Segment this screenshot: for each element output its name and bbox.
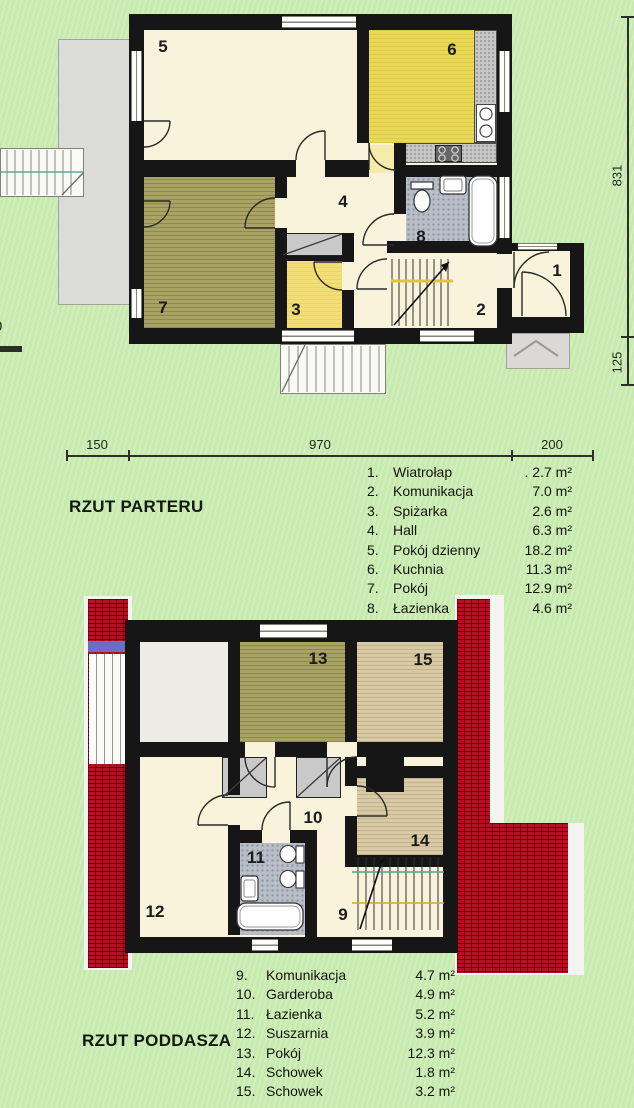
wall [129, 160, 296, 177]
attic-room-nw [140, 642, 228, 742]
dim-left-cut-fragment: 0 [0, 318, 2, 335]
room-vestibule [510, 248, 570, 317]
window [420, 330, 474, 342]
wall [394, 165, 497, 177]
wall [125, 937, 458, 953]
wall [345, 642, 357, 742]
wall [228, 757, 240, 795]
ground-floor-legend: 1.Wiatrołap. 2.7 m² 2.Komunikacja7.0 m² … [367, 463, 572, 618]
roof-right-lower [457, 823, 568, 973]
room-label-13: 13 [309, 649, 328, 669]
attic-title: RZUT PODDASZA [82, 1031, 231, 1051]
dimension-line-horizontal [67, 455, 593, 457]
entry-porch [506, 333, 570, 369]
dim-tick [66, 450, 68, 461]
exterior-stairs-south [280, 344, 386, 394]
room-label-7: 7 [158, 298, 167, 318]
room-label-5: 5 [158, 37, 167, 57]
chimney [366, 757, 404, 792]
wall [443, 620, 458, 953]
wall [228, 830, 262, 843]
room-label-14: 14 [411, 831, 430, 851]
wall [275, 160, 287, 198]
dim-height-main: 831 [609, 165, 624, 187]
legend-row: 5.Pokój dzienny18.2 m² [367, 541, 572, 560]
dim-width-right: 200 [530, 437, 574, 452]
window [499, 177, 510, 238]
window [352, 939, 392, 951]
kitchen-sink [476, 104, 496, 142]
legend-row: 1.Wiatrołap. 2.7 m² [367, 463, 572, 482]
wall [125, 742, 458, 757]
wall [497, 317, 584, 333]
dim-height-lower: 125 [609, 352, 624, 374]
room-label-3: 3 [291, 300, 300, 320]
room-label-15: 15 [414, 650, 433, 670]
dim-tick [621, 384, 634, 386]
legend-row: 4.Hall6.3 m² [367, 521, 572, 540]
room-label-9: 9 [338, 905, 347, 925]
kitchen-cooktop [435, 145, 462, 162]
dimension-line-vertical [627, 17, 629, 385]
hall-closet [282, 233, 343, 256]
legend-row: 12.Suszarnia3.9 m² [236, 1024, 455, 1043]
exterior-stairs-west [0, 148, 84, 197]
ground-floor-title: RZUT PARTERU [69, 497, 204, 517]
room-label-6: 6 [447, 40, 456, 60]
wall [394, 177, 406, 214]
wall [357, 30, 369, 143]
wall [394, 244, 406, 253]
dim-tick [621, 336, 634, 338]
window [282, 16, 356, 28]
legend-row: 3.Spiżarka2.6 m² [367, 502, 572, 521]
legend-row: 2.Komunikacja7.0 m² [367, 482, 572, 501]
dim-width-left: 150 [75, 437, 119, 452]
wall [394, 143, 406, 165]
dim-tick [621, 16, 634, 18]
wall [275, 228, 287, 328]
room-label-10: 10 [304, 808, 323, 828]
roof-right-upper [457, 599, 490, 826]
wall [342, 233, 354, 262]
wardrobe [296, 757, 341, 798]
legend-row: 7.Pokój12.9 m² [367, 579, 572, 598]
room-label-11: 11 [247, 848, 265, 868]
room-label-8: 8 [416, 227, 425, 247]
legend-row: 14.Schowek1.8 m² [236, 1063, 455, 1082]
dim-left-cut-bar [0, 346, 22, 352]
window [252, 939, 278, 951]
wall [342, 290, 354, 328]
room-label-4: 4 [338, 192, 347, 212]
wall [345, 855, 445, 867]
room-kitchen [365, 30, 474, 143]
roof-gutter [88, 641, 128, 652]
legend-row: 9.Komunikacja4.7 m² [236, 966, 455, 985]
wall [125, 620, 140, 953]
room-label-1: 1 [552, 261, 561, 281]
room-label-12: 12 [146, 902, 165, 922]
attic-legend: 9.Komunikacja4.7 m² 10.Garderoba4.9 m² 1… [236, 966, 455, 1102]
legend-row: 15.Schowek3.2 m² [236, 1082, 455, 1101]
legend-row: 13.Pokój12.3 m² [236, 1044, 455, 1063]
dim-width-mid: 970 [298, 437, 342, 452]
wall [305, 830, 317, 937]
window [518, 243, 557, 250]
dim-tick [592, 450, 594, 461]
wall [282, 256, 344, 261]
room-label-2: 2 [476, 300, 485, 320]
legend-row: 6.Kuchnia11.3 m² [367, 560, 572, 579]
window [131, 51, 142, 121]
dim-tick [128, 450, 130, 461]
window [282, 330, 354, 342]
window [260, 624, 327, 638]
window [499, 51, 510, 112]
legend-row: 11.Łazienka5.2 m² [236, 1005, 455, 1024]
window [131, 289, 142, 318]
floor-plan-page: 5 6 4 8 7 3 2 1 831 125 150 970 200 0 RZ… [0, 0, 634, 1108]
dim-tick [511, 450, 513, 461]
room-13-pokoj [240, 642, 345, 742]
legend-row: 8.Łazienka4.6 m² [367, 599, 572, 618]
wall [325, 160, 369, 177]
roof-skylight [89, 654, 129, 764]
legend-row: 10.Garderoba4.9 m² [236, 985, 455, 1004]
door-opening [245, 742, 275, 757]
door-opening [327, 742, 357, 757]
door-opening [497, 254, 512, 288]
wall [228, 642, 240, 742]
